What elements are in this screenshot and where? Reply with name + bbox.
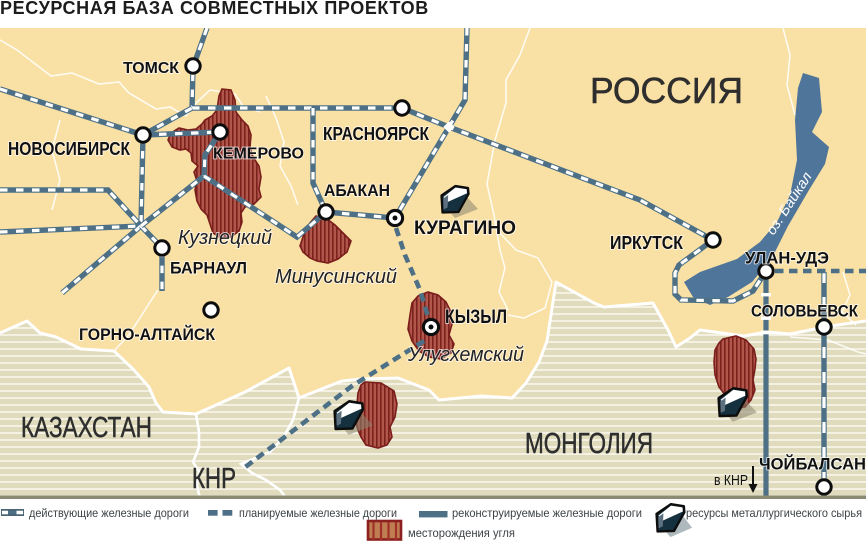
svg-text:АБАКАН: АБАКАН — [324, 181, 390, 200]
svg-text:ТОМСК: ТОМСК — [123, 60, 180, 77]
svg-text:реконструируемые железные доро: реконструируемые железные дороги — [452, 506, 642, 520]
svg-text:БАРНАУЛ: БАРНАУЛ — [170, 259, 247, 278]
svg-text:ЧОЙБАЛСАН: ЧОЙБАЛСАН — [759, 455, 866, 474]
svg-text:Минусинский: Минусинский — [275, 265, 397, 288]
svg-text:ИРКУТСК: ИРКУТСК — [610, 233, 684, 253]
svg-text:КУРАГИНО: КУРАГИНО — [414, 217, 516, 239]
svg-text:СОЛОВЬЕВСК: СОЛОВЬЕВСК — [751, 302, 859, 321]
svg-text:РОССИЯ: РОССИЯ — [590, 70, 743, 111]
svg-text:КРАСНОЯРСК: КРАСНОЯРСК — [323, 124, 430, 144]
svg-text:ресурсы металлургического сырь: ресурсы металлургического сырья — [686, 506, 862, 520]
svg-text:КЕМЕРОВО: КЕМЕРОВО — [213, 146, 304, 163]
svg-text:ГОРНО-АЛТАЙСК: ГОРНО-АЛТАЙСК — [79, 325, 216, 344]
svg-text:НОВОСИБИРСК: НОВОСИБИРСК — [8, 139, 131, 159]
svg-text:Кузнецкий: Кузнецкий — [178, 226, 272, 249]
svg-text:КАЗАХСТАН: КАЗАХСТАН — [21, 412, 152, 444]
svg-text:в КНР: в КНР — [714, 472, 748, 489]
svg-text:планируемые железные дороги: планируемые железные дороги — [239, 506, 397, 520]
svg-text:месторождения угля: месторождения угля — [408, 526, 515, 540]
svg-text:Улугхемский: Улугхемский — [407, 343, 524, 366]
svg-text:действующие железные дороги: действующие железные дороги — [29, 506, 189, 520]
svg-text:УЛАН-УДЭ: УЛАН-УДЭ — [745, 249, 829, 268]
svg-text:КНР: КНР — [192, 463, 236, 495]
svg-text:МОНГОЛИЯ: МОНГОЛИЯ — [525, 428, 653, 460]
svg-text:КЫЗЫЛ: КЫЗЫЛ — [445, 306, 507, 328]
